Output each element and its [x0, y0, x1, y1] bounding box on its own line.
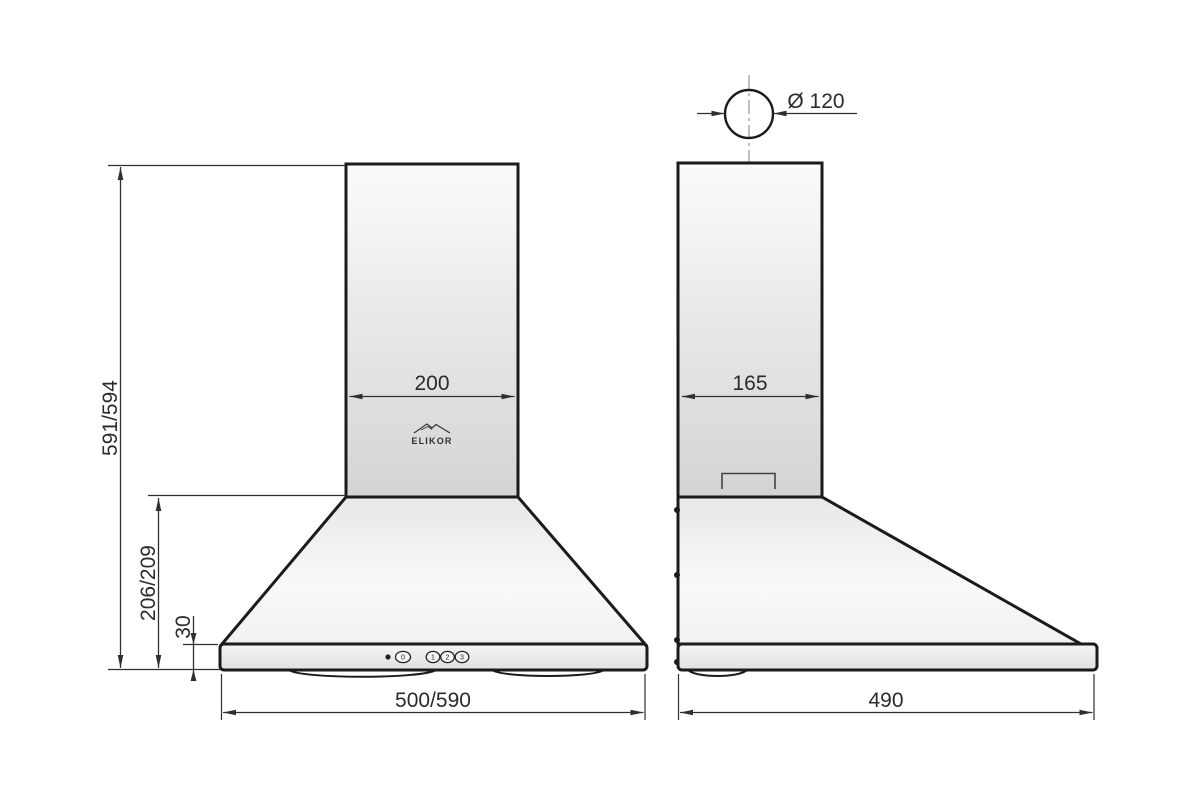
- side-view: 165 Ø 120 490: [674, 75, 1097, 720]
- technical-drawing-range-hood: 200 ELIKOR 0 1 2 3: [0, 0, 1200, 800]
- dim-label-canopy-height: 206/209: [137, 545, 160, 621]
- dim-label-base-height: 30: [172, 615, 195, 638]
- dim-label-body-depth: 490: [868, 689, 903, 712]
- button-3-label: 3: [460, 655, 464, 662]
- dim-label-duct-width: 200: [414, 372, 449, 395]
- dim-outlet-diameter: Ø 120: [697, 90, 857, 114]
- front-view: 200 ELIKOR 0 1 2 3: [99, 164, 647, 720]
- dim-body-width: 500/590: [222, 674, 646, 720]
- front-canopy: [222, 497, 645, 644]
- dim-body-depth: 490: [679, 674, 1095, 720]
- elikor-logo-text: ELIKOR: [411, 436, 452, 446]
- dim-base-height: 30: [172, 615, 218, 681]
- drawing-svg: 200 ELIKOR 0 1 2 3: [0, 0, 1200, 800]
- dim-label-duct-depth: 165: [732, 372, 767, 395]
- side-base-panel: [678, 644, 1097, 670]
- side-duct: [678, 163, 822, 497]
- power-indicator-dot: [385, 654, 390, 659]
- button-2-label: 2: [446, 655, 450, 662]
- side-canopy: [678, 497, 1081, 644]
- dim-label-total-height: 591/594: [99, 380, 122, 456]
- dim-label-body-width: 500/590: [395, 689, 471, 712]
- dim-label-outlet-diameter: Ø 120: [787, 90, 844, 113]
- button-0-label: 0: [401, 655, 405, 662]
- front-duct: [346, 164, 518, 497]
- button-1-label: 1: [431, 655, 435, 662]
